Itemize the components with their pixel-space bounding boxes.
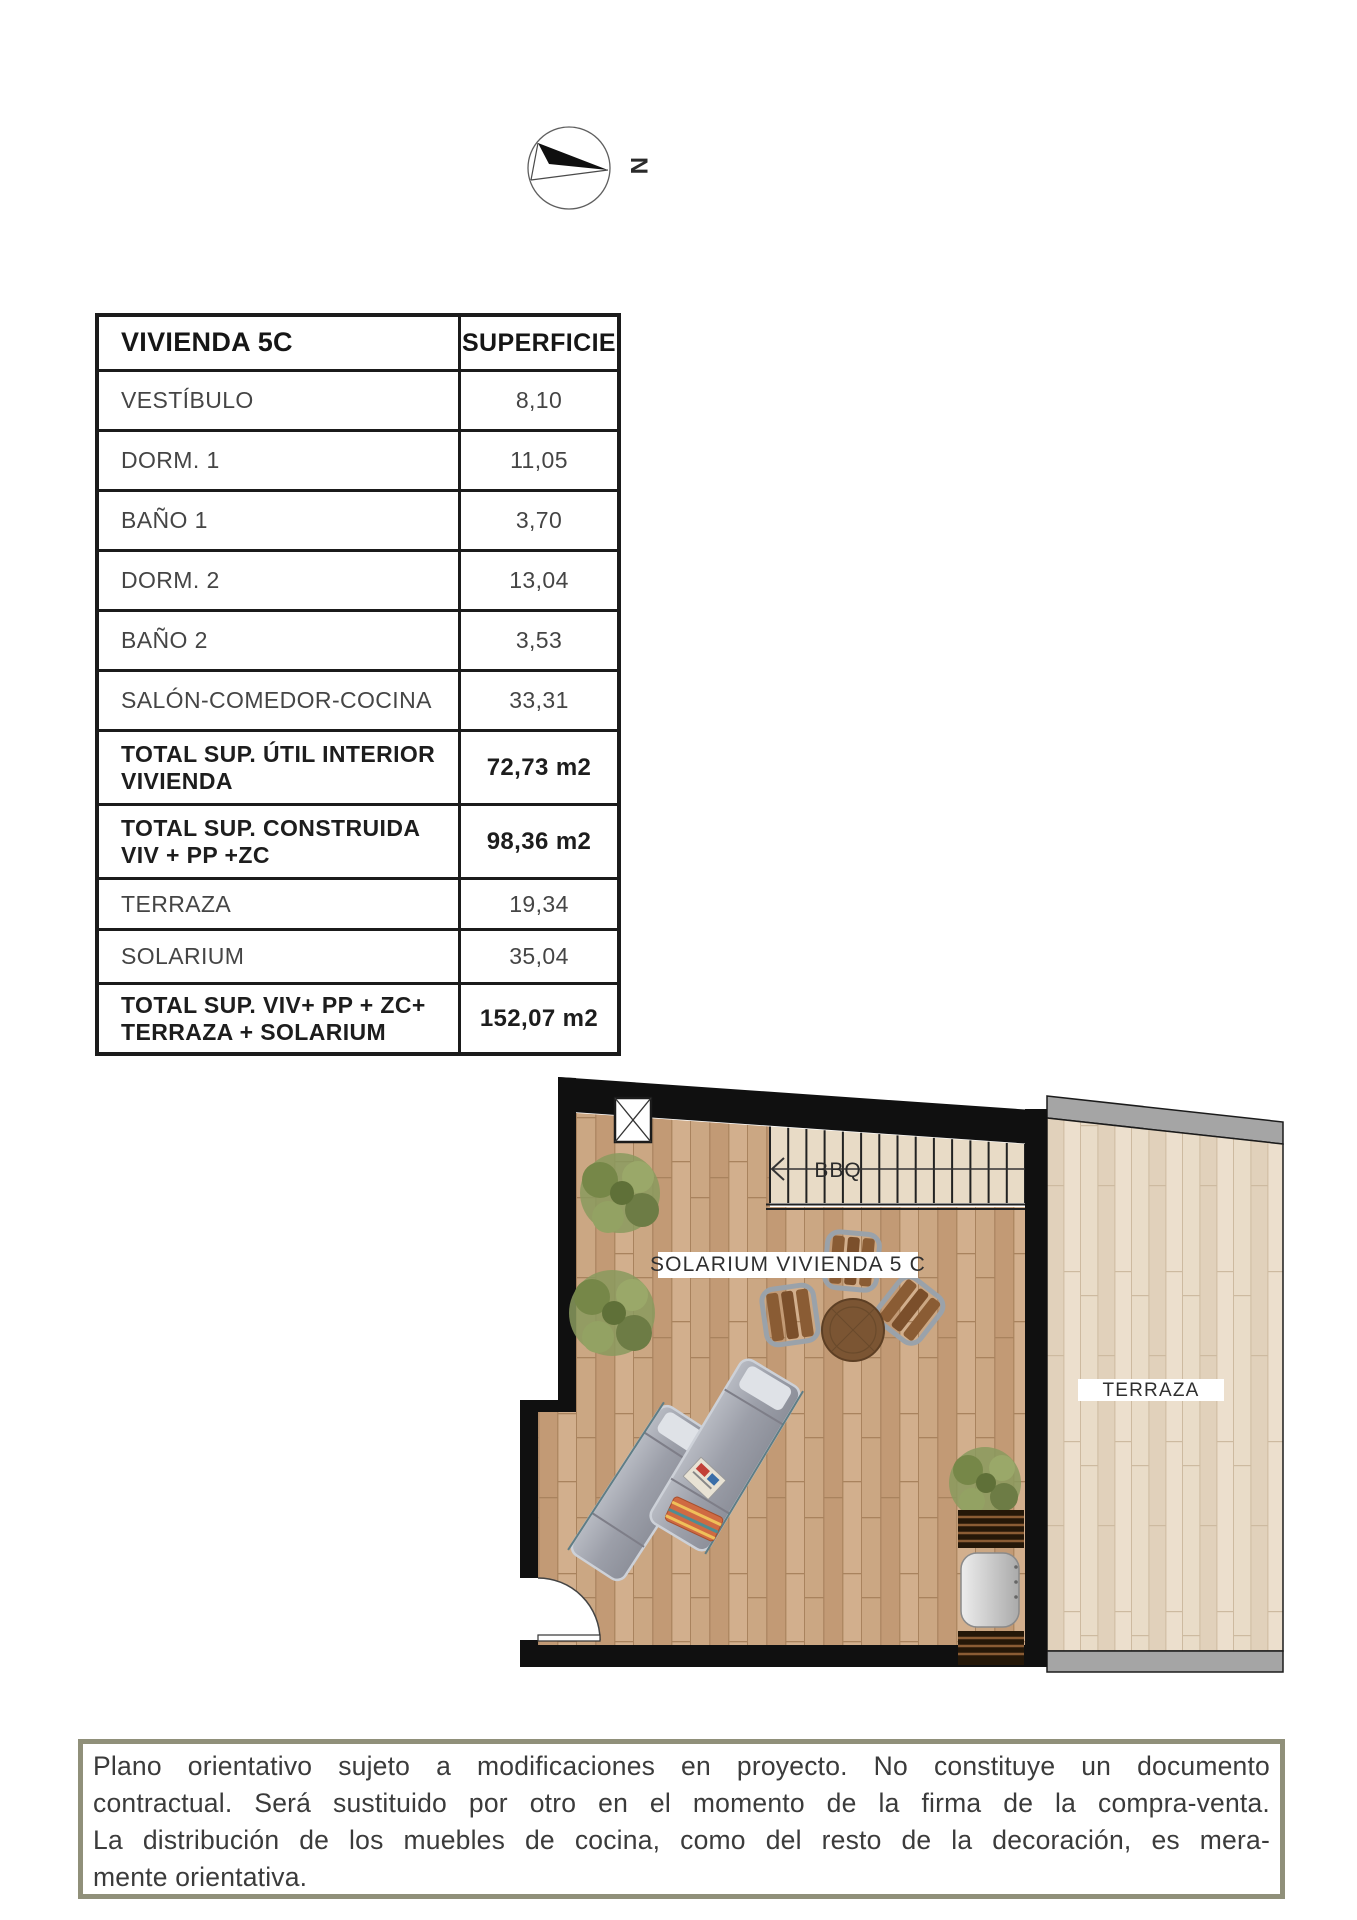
surface-value-cell: 13,04: [461, 552, 617, 609]
surface-value-cell: 98,36 m2: [461, 806, 617, 877]
terraza-bottom-parapet: [1047, 1651, 1283, 1672]
surface-value-cell: 72,73 m2: [461, 732, 617, 803]
surface-header: SUPERFICIE: [461, 317, 617, 369]
surface-value-cell: 152,07 m2: [461, 985, 617, 1052]
room-label-cell: BAÑO 2: [99, 612, 461, 669]
room-label-cell: TOTAL SUP. CONSTRUIDA VIV + PP +ZC: [99, 806, 461, 877]
room-label-cell: TERRAZA: [99, 880, 461, 928]
bbq-label: BBQ: [814, 1159, 861, 1182]
room-label-cell: TOTAL SUP. ÚTIL INTERIOR VIVIENDA: [99, 732, 461, 803]
disclaimer-line: La distribución de los muebles de cocina…: [93, 1822, 1270, 1859]
surface-value-cell: 33,31: [461, 672, 617, 729]
plant: [569, 1270, 655, 1356]
surface-value-cell: 11,05: [461, 432, 617, 489]
brochure-page: N VIVIENDA 5C SUPERFICIE VESTÍBULO 8,10 …: [0, 0, 1357, 1920]
table-row: SALÓN-COMEDOR-COCINA 33,31: [99, 669, 617, 729]
surface-value-cell: 8,10: [461, 372, 617, 429]
table-row-total-construida: TOTAL SUP. CONSTRUIDA VIV + PP +ZC 98,36…: [99, 803, 617, 877]
table-header-row: VIVIENDA 5C SUPERFICIE: [99, 317, 617, 369]
terraza-label: TERRAZA: [1102, 1380, 1199, 1401]
surface-value-cell: 3,70: [461, 492, 617, 549]
table-row: DORM. 1 11,05: [99, 429, 617, 489]
table-row: TERRAZA 19,34: [99, 877, 617, 928]
table-row-total-util: TOTAL SUP. ÚTIL INTERIOR VIVIENDA 72,73 …: [99, 729, 617, 803]
bbq-grill-unit: [958, 1510, 1024, 1665]
table-row: VESTÍBULO 8,10: [99, 369, 617, 429]
surface-table: VIVIENDA 5C SUPERFICIE VESTÍBULO 8,10 DO…: [95, 313, 621, 1056]
surface-value-cell: 19,34: [461, 880, 617, 928]
terraza-label-band: TERRAZA: [1078, 1379, 1224, 1401]
shaft-box: [615, 1098, 651, 1142]
grill-mat: [958, 1631, 1024, 1665]
disclaimer-line: contractual. Será sustituido por otro en…: [93, 1785, 1270, 1822]
surface-value-cell: 3,53: [461, 612, 617, 669]
room-label-cell: SOLARIUM: [99, 931, 461, 982]
plant: [949, 1447, 1021, 1519]
door-leaf: [538, 1635, 600, 1641]
round-table: [822, 1299, 884, 1361]
table-row: SOLARIUM 35,04: [99, 928, 617, 982]
room-label-cell: TOTAL SUP. VIV+ PP + ZC+ TERRAZA + SOLAR…: [99, 985, 461, 1052]
room-label-cell: BAÑO 1: [99, 492, 461, 549]
solarium-label: SOLARIUM VIVIENDA 5 C: [650, 1253, 926, 1276]
disclaimer-box: Plano orientativo sujeto a modificacione…: [78, 1739, 1285, 1899]
table-row: BAÑO 2 3,53: [99, 609, 617, 669]
dwelling-title: VIVIENDA 5C: [99, 317, 461, 369]
disclaimer-line: mente orientativa.: [93, 1859, 1270, 1896]
room-label-cell: SALÓN-COMEDOR-COCINA: [99, 672, 461, 729]
north-label: N: [625, 157, 652, 174]
solarium-label-band: SOLARIUM VIVIENDA 5 C: [650, 1252, 926, 1278]
compass-north-arrow: N: [515, 95, 655, 220]
table-row-total-general: TOTAL SUP. VIV+ PP + ZC+ TERRAZA + SOLAR…: [99, 982, 617, 1052]
room-label-cell: DORM. 1: [99, 432, 461, 489]
table-row: DORM. 2 13,04: [99, 549, 617, 609]
grill-body: [961, 1553, 1019, 1627]
room-label-cell: VESTÍBULO: [99, 372, 461, 429]
disclaimer-line: Plano orientativo sujeto a modificacione…: [93, 1748, 1270, 1785]
surface-value-cell: 35,04: [461, 931, 617, 982]
plant: [580, 1153, 660, 1233]
table-row: BAÑO 1 3,70: [99, 489, 617, 549]
grill-mat: [958, 1510, 1024, 1548]
room-label-cell: DORM. 2: [99, 552, 461, 609]
floor-plan: BBQ: [520, 1065, 1290, 1680]
compass-needle: [538, 143, 608, 170]
